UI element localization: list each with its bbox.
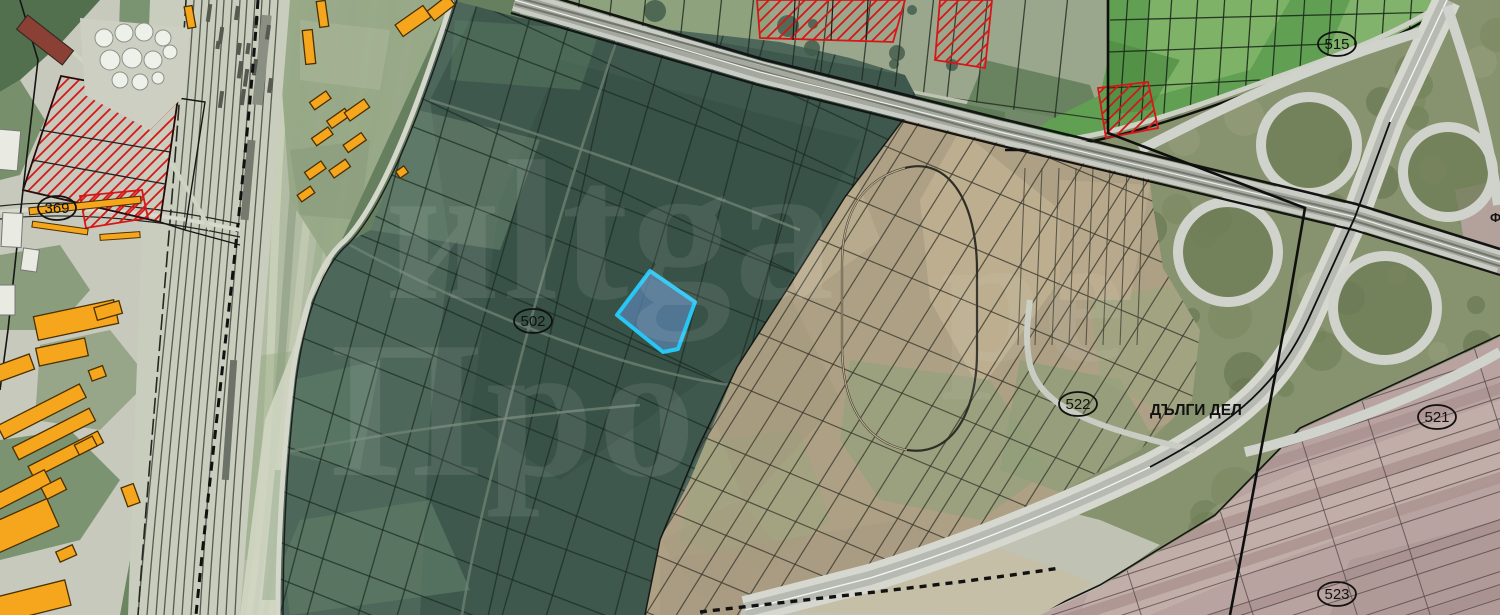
- svg-text:523: 523: [1324, 586, 1349, 603]
- svg-text:502: 502: [520, 313, 545, 330]
- svg-text:522: 522: [1065, 396, 1090, 413]
- svg-text:ре: ре: [940, 196, 1125, 401]
- svg-text:Ф: Ф: [1490, 210, 1500, 225]
- svg-text:Про: Про: [330, 302, 700, 518]
- svg-text:521: 521: [1424, 409, 1449, 426]
- svg-text:515: 515: [1324, 36, 1349, 53]
- svg-text:ДЪЛГИ ДЕЛ: ДЪЛГИ ДЕЛ: [1150, 402, 1242, 419]
- svg-text:369: 369: [44, 200, 69, 217]
